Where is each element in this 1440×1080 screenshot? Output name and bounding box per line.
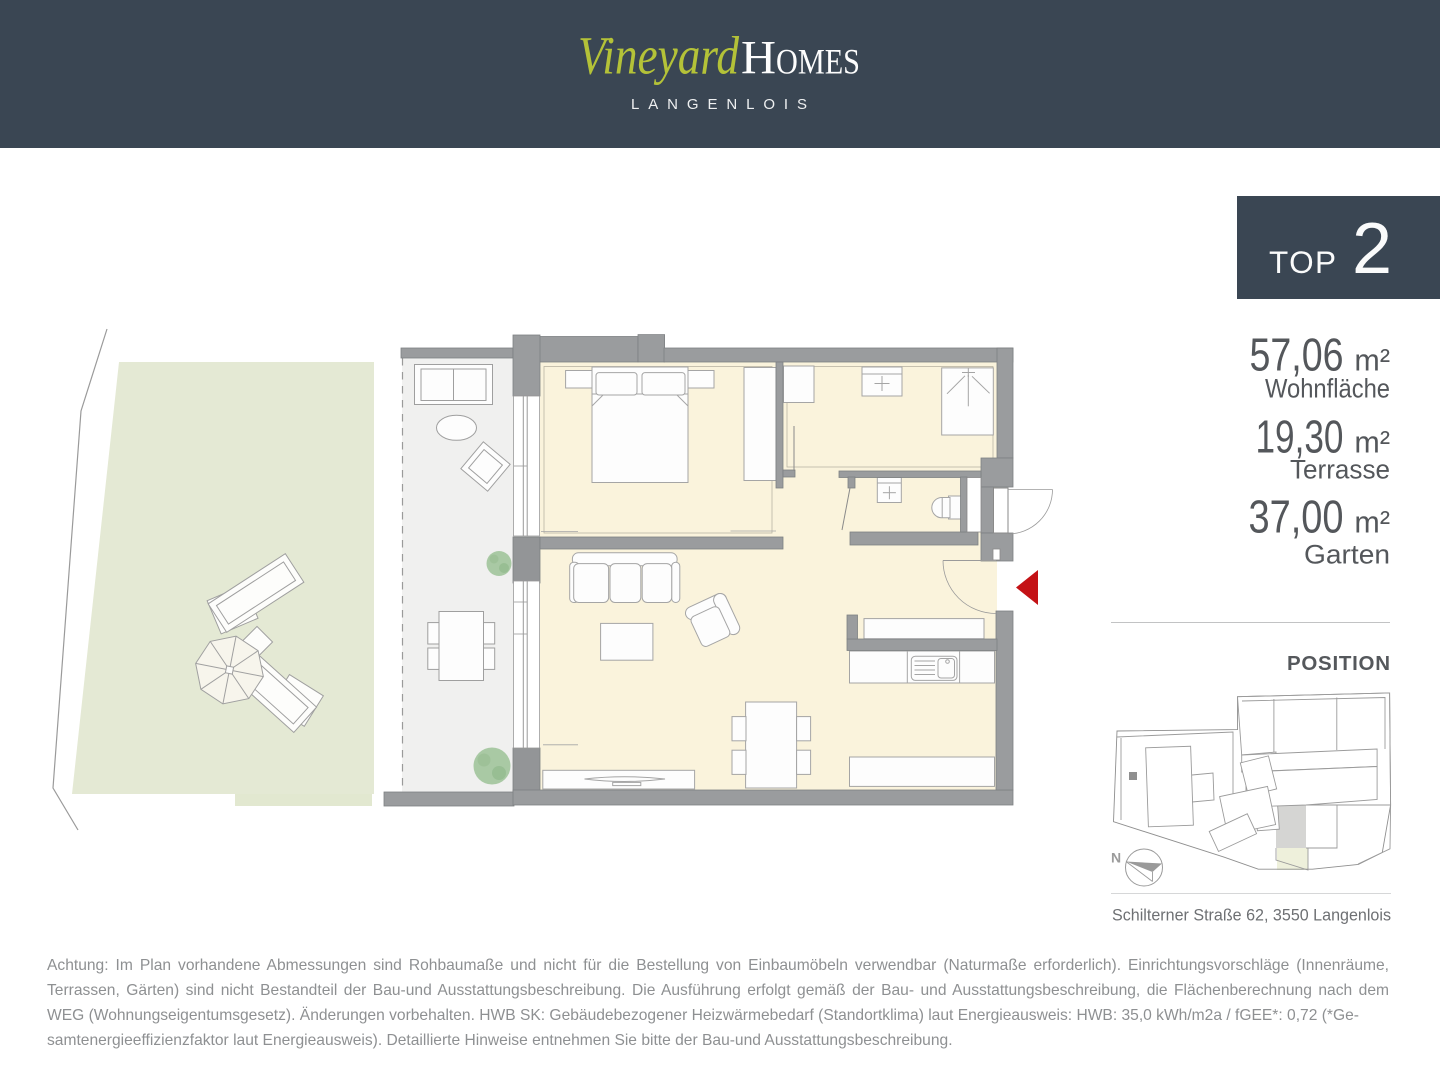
svg-text:Wohnfläche: Wohnfläche (1265, 374, 1390, 404)
svg-text:m²: m² (1354, 506, 1390, 540)
svg-text:Schilterner Straße 62, 3550 La: Schilterner Straße 62, 3550 Langenlois (1112, 907, 1391, 925)
svg-text:Garten: Garten (1304, 540, 1390, 570)
svg-text:37,00: 37,00 (1249, 491, 1344, 543)
svg-text:Vineyard: Vineyard (578, 26, 740, 86)
svg-text:2: 2 (1352, 209, 1392, 289)
svg-text:LANGENLOIS: LANGENLOIS (631, 96, 807, 113)
svg-text:Terrasse: Terrasse (1290, 455, 1390, 485)
svg-text:m²: m² (1354, 344, 1390, 378)
svg-text:N: N (1111, 850, 1121, 866)
svg-text:TOP: TOP (1269, 244, 1336, 280)
svg-text:H: H (741, 32, 776, 85)
svg-text:OMES: OMES (776, 42, 860, 82)
